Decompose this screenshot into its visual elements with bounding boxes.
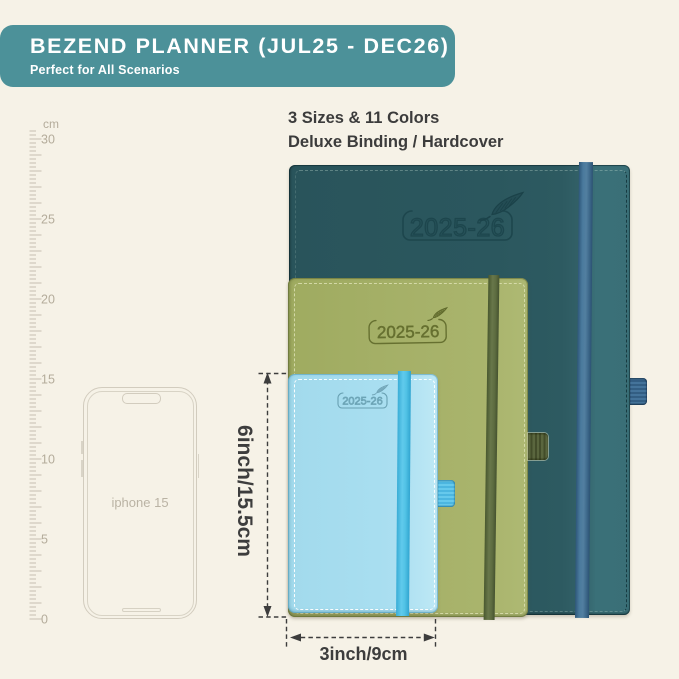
svg-text:6inch/15.5cm: 6inch/15.5cm [233,425,256,557]
svg-text:3inch/9cm: 3inch/9cm [319,644,407,664]
